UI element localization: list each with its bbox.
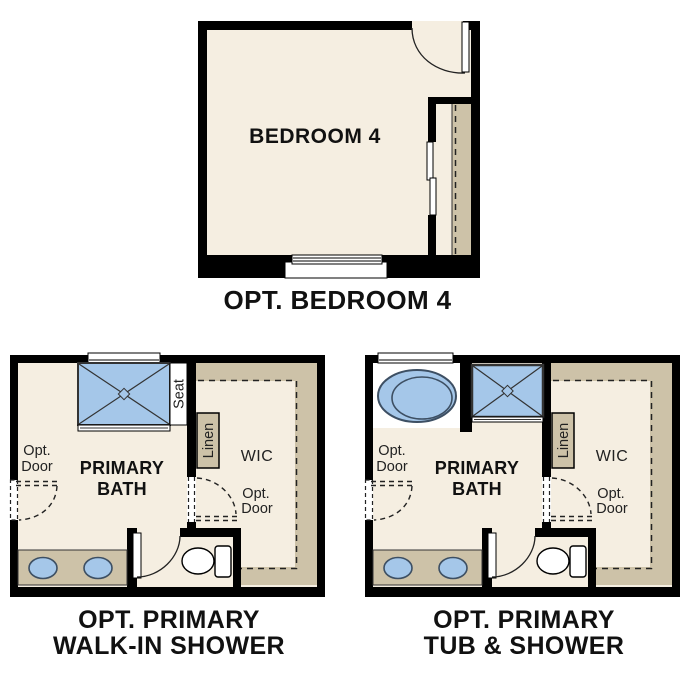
linen-label: Linen <box>556 423 572 458</box>
toilet-door-leaf <box>133 533 141 578</box>
sink <box>84 558 112 579</box>
wic-label: WIC <box>596 448 629 465</box>
closet-sliding-door-panel <box>427 142 433 180</box>
tub-shower-plan-title: OPT. PRIMARY TUB & SHOWER <box>363 607 685 659</box>
toilet-door-leaf <box>488 533 496 578</box>
vanity <box>373 550 482 585</box>
wic-label: WIC <box>241 448 274 465</box>
sink <box>439 558 467 579</box>
toilet-bowl <box>537 548 569 574</box>
sink <box>384 558 412 579</box>
bedroom4-plan-title: OPT. BEDROOM 4 <box>190 287 485 313</box>
toilet-tank <box>215 546 231 577</box>
bedroom4-floor <box>198 21 480 278</box>
opt-door-left-label-line1: Opt. <box>23 443 50 459</box>
walk-in-shower-floorplan: Seat Linen PRIMA <box>8 350 330 602</box>
floorplan-sheet: BEDROOM 4 OPT. BEDROOM 4 <box>0 0 687 687</box>
linen-label: Linen <box>201 423 217 458</box>
toilet-bowl <box>182 548 214 574</box>
tub-shower-floorplan: Linen PRIMARY BATH WIC <box>363 350 685 602</box>
closet-sliding-door-panel <box>430 178 436 215</box>
opt-door-right-label-line1: Opt. <box>597 486 624 502</box>
opt-door-right-label-line2: Door <box>596 501 628 517</box>
shower <box>472 365 543 422</box>
title-line2: TUB & SHOWER <box>363 633 685 659</box>
room-label-line2: BATH <box>97 479 147 499</box>
room-label-bedroom4: BEDROOM 4 <box>249 125 381 148</box>
opt-door-left-label-line2: Door <box>376 459 408 475</box>
sink <box>29 558 57 579</box>
bedroom4-window <box>285 255 387 278</box>
vanity <box>18 550 127 585</box>
bedroom4-floorplan: BEDROOM 4 <box>190 14 490 282</box>
seat-label: Seat <box>172 379 188 409</box>
title-line2: WALK-IN SHOWER <box>8 633 330 659</box>
window <box>378 353 453 363</box>
walk-in-shower: Seat <box>78 353 188 431</box>
door-leaf <box>462 22 469 72</box>
room-label-line1: PRIMARY <box>435 458 519 478</box>
window <box>88 353 160 363</box>
bathtub <box>373 353 460 428</box>
opt-door-left-label-line1: Opt. <box>378 443 405 459</box>
title-line1: OPT. PRIMARY <box>8 607 330 633</box>
room-label-line2: BATH <box>452 479 502 499</box>
walk-in-shower-plan-title: OPT. PRIMARY WALK-IN SHOWER <box>8 607 330 659</box>
title-line1: OPT. PRIMARY <box>363 607 685 633</box>
room-label-line1: PRIMARY <box>80 458 164 478</box>
opt-door-right-label-line1: Opt. <box>242 486 269 502</box>
opt-door-left-label-line2: Door <box>21 459 53 475</box>
opt-door-right-label-line2: Door <box>241 501 273 517</box>
toilet-tank <box>570 546 586 577</box>
